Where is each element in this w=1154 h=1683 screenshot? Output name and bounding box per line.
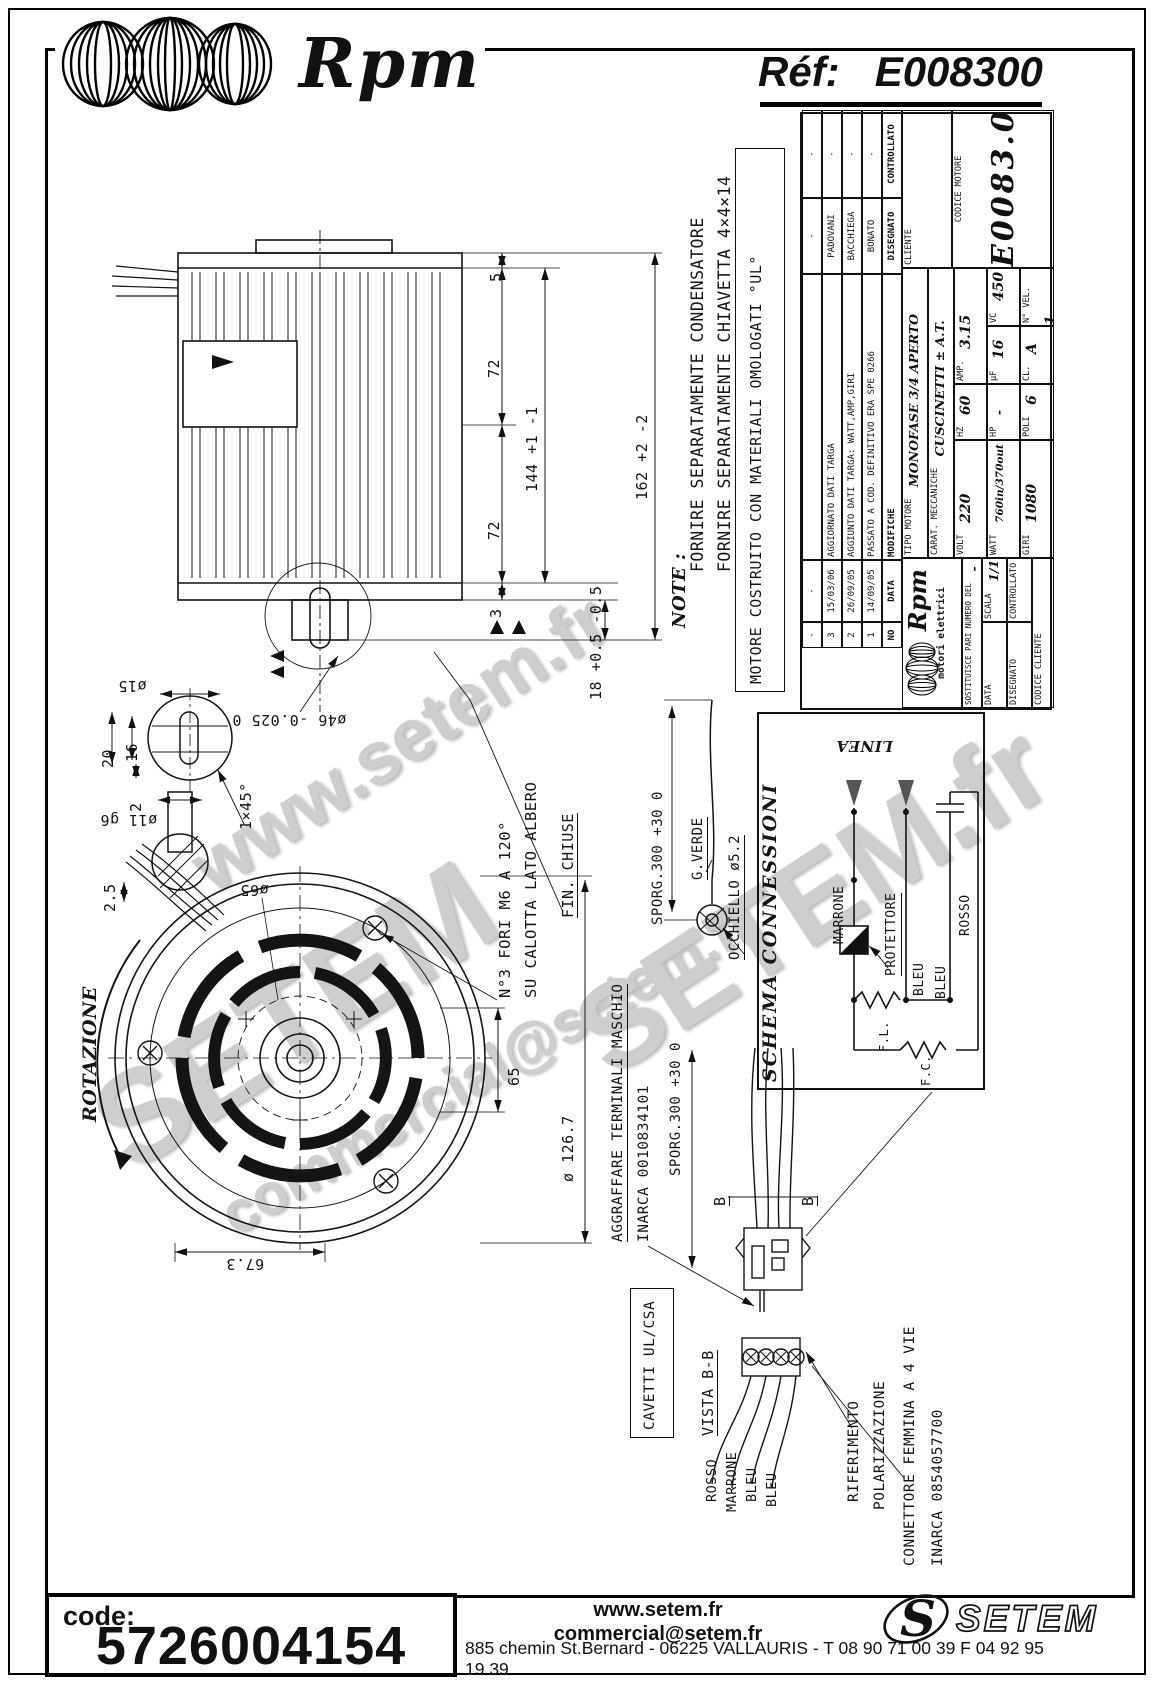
section-b-left: B (712, 1196, 730, 1206)
ref-underline (760, 102, 1042, 107)
tb-scala-label: SCALA (983, 591, 995, 621)
rev-hdr-date: DATA (882, 560, 902, 622)
rev-des: - (802, 198, 822, 274)
tb-scala-value: 1/1 (986, 560, 1001, 582)
brand-text: Rpm (299, 24, 481, 104)
tb-carat-label: CARAT. MECCANICHE (929, 466, 941, 557)
schema-fl-label: F.L. (876, 1021, 892, 1052)
wire-bleu2-label: BLEU (764, 1472, 780, 1507)
tb-sost-label: SOSTITUISCE PARI NUMERO DEL (963, 581, 974, 707)
rev-hdr-des: DISEGNATO (882, 198, 902, 274)
dim-11-label: ø11 g6 (100, 812, 157, 828)
tb-hp-value: - (991, 410, 1006, 415)
schema-rosso-label: ROSSO (958, 894, 974, 936)
rev-des: BACCHIEGA (842, 198, 862, 274)
rev-ctrl: - (822, 110, 842, 198)
tb-logo-cell: Rpm motori elettrici (902, 558, 962, 708)
wire-bleu1-label: BLEU (744, 1467, 760, 1502)
tb-brand: Rpm (903, 569, 932, 631)
wire-rosso-label: ROSSO (704, 1459, 720, 1502)
callout-occhiello: OCCHIELLO ø5.2 (727, 835, 745, 960)
code-value: 5726004154 (49, 1615, 453, 1677)
tb-carat-value: CUSCINETTI ± A.T. (932, 320, 947, 456)
cavetti-label: CAVETTI UL/CSA (642, 1301, 658, 1430)
dim-46-label: ø46 -0.025 0 (232, 712, 346, 728)
riferimento-line2: POLARIZZAZIONE (872, 1381, 888, 1510)
title-block: - - - - 3 15/03/06 AGGIORNATO DATI TARGA… (800, 112, 1052, 710)
dim-20-label: 20 (100, 749, 116, 768)
setem-logo: S SETEM (878, 1590, 1098, 1648)
reference-number: Réf: E008300 (758, 48, 1048, 96)
dim-5-label: 5 (488, 272, 504, 282)
rev-date: 26/09/05 (842, 560, 862, 622)
revision-row: 1 14/09/05 PASSATO A COD. DEFINITIVO ERA… (862, 110, 882, 648)
callout-gverde: G.VERDE (690, 817, 708, 880)
dim-25-label: 2.5 (102, 883, 118, 912)
tb-poli-value: 6 (1024, 395, 1040, 405)
tb-hz-label: HZ (955, 425, 967, 439)
tb-amp-label: AMP. (955, 359, 967, 383)
schema-box (757, 712, 985, 1090)
rev-mod: AGGIUNTO DATI TARGA: WATT,AMP,GIRI (842, 274, 862, 560)
shaft-detail-drawing (112, 688, 244, 902)
dim-18-label: 18 +0.5 -0.5 (588, 586, 604, 700)
callout-aggraffare-line2: INARCA 0010834101 (636, 1085, 652, 1242)
dim-72b-label: 72 (486, 521, 502, 540)
note-line2: FORNIRE SEPARATAMENTE CHIAVETTA 4×4×14 (717, 176, 733, 573)
rev-no: - (802, 622, 822, 648)
tb-watt-value: 760in/370out (994, 444, 1006, 523)
tb-volt-label: VOLT (955, 533, 967, 557)
tb-sostituisce-cell: SOSTITUISCE PARI NUMERO DEL - (962, 558, 982, 708)
dim-126-label: ø 126.7 (560, 1115, 576, 1182)
revision-header-row: NO DATA MODIFICHE DISEGNATO CONTROLLATO (882, 110, 902, 648)
tb-disegnato-cell: DISEGNATO BONATO (1007, 622, 1032, 708)
schema-bleu2-label: BLEU (934, 966, 950, 999)
dim-chamfer-label: 1×45° (238, 782, 254, 830)
schema-bleu1-label: BLEU (912, 963, 928, 996)
tb-tipo-value: MONOFASE 3/4 APERTO (906, 314, 921, 487)
schema-linea-label: LINEA (836, 738, 893, 754)
rev-hdr-no: NO (882, 622, 902, 648)
revision-row: 2 26/09/05 AGGIUNTO DATI TARGA: WATT,AMP… (842, 110, 862, 648)
tb-amp-cell: AMP. 3.15 (954, 268, 987, 384)
rev-ctrl: - (842, 110, 862, 198)
connettore-line2: INARCA 0854057700 (930, 1409, 946, 1566)
tb-uf-value: 16 (991, 340, 1007, 359)
dim-673-label: 67.3 (226, 1256, 264, 1272)
tb-controllato-cell: CONTROLLATO (1007, 558, 1032, 622)
wire-marrone-label: MARRONE (724, 1452, 740, 1512)
tb-hz-value: 60 (958, 396, 974, 415)
tb-data-label: DATA (983, 683, 995, 707)
callout-aggraffare-line1: AGGRAFFARE TERMINALI MASCHIO (610, 984, 628, 1242)
dim-162-label: 162 +2 -2 (634, 414, 650, 500)
dim-144-label: 144 +1 -1 (524, 406, 540, 492)
tb-codice-cliente-label: CODICE CLIENTE (1033, 631, 1045, 707)
tb-codice-cliente-cell: CODICE CLIENTE (1032, 558, 1054, 708)
note-label: NOTE : (672, 553, 688, 628)
rev-mod: PASSATO A COD. DEFINITIVO ERA SPE 0266 (862, 274, 882, 560)
rev-hdr-mod: MODIFICHE (882, 274, 902, 560)
rev-ctrl: - (862, 110, 882, 198)
tb-cl-value: A (1024, 343, 1040, 354)
rev-date: 14/09/05 (862, 560, 882, 622)
callout-fori-line1: N°3 FORI M6 A 120° (497, 821, 513, 998)
tb-cliente-label: CLIENTE (903, 227, 915, 267)
schema-protettore-label: PROTETTORE (884, 893, 902, 976)
tb-tipo-label: TIPO MOTORE (903, 497, 915, 557)
rev-des: PADOVANI (822, 198, 842, 274)
ref-label: Réf: (758, 48, 840, 95)
rev-mod: AGGIORNATO DATI TARGA (822, 274, 842, 560)
tb-amp-value: 3.15 (958, 315, 974, 349)
tb-cl-label: CL. (1021, 364, 1033, 383)
tb-carat-cell: CARAT. MECCANICHE CUSCINETTI ± A.T. (928, 268, 954, 558)
tb-giri-label: GIRI (1021, 533, 1033, 557)
tb-hp-label: HP (988, 425, 1000, 439)
dim-65-label: 65 (506, 1067, 522, 1086)
vista-bb-label: VISTA B-B (700, 1350, 718, 1436)
drawing-sheet: www.setem.fr SETEM commercial@setem.fr S… (0, 0, 1154, 1683)
rev-date: 15/03/06 (822, 560, 842, 622)
setem-brand-text: SETEM (956, 1598, 1098, 1640)
tb-uf-cell: µF 16 (987, 326, 1020, 384)
tb-nvel-cell: N° VEL. 1 (1020, 268, 1054, 326)
schema-fc-label: F.C. (918, 1055, 934, 1086)
setem-s-glyph: S (900, 1590, 936, 1648)
connettore-line1: CONNETTORE FEMMINA A 4 VIE (902, 1326, 918, 1566)
tb-watt-cell: WATT 760in/370out (987, 440, 1020, 558)
callout-fori-line2: SU CALOTTA LATO ALBERO (523, 782, 539, 998)
tb-cliente-cell: CLIENTE (902, 110, 952, 268)
tb-sost-value: - (966, 566, 981, 571)
code-box: code: 5726004154 (45, 1593, 457, 1677)
tb-nvel-label: N° VEL. (1021, 285, 1033, 325)
tb-scala-cell: SCALA 1/1 (982, 558, 1007, 622)
tb-vc-value: 450 (991, 272, 1007, 301)
tb-poli-cell: POLI 6 (1020, 384, 1054, 440)
rev-mod (802, 274, 822, 560)
schema-marrone-label: MARRONE (832, 886, 848, 944)
rpm-logo: Rpm (55, 14, 485, 114)
tb-volt-cell: VOLT 220 (954, 440, 987, 558)
note-line1: FORNIRE SEPARATAMENTE CONDENSATORE (690, 217, 706, 572)
tb-tipo-cell: TIPO MOTORE MONOFASE 3/4 APERTO (902, 268, 928, 558)
tb-data-cell: DATA 14/09/05 (982, 622, 1007, 708)
ul-box-text: MOTORE COSTRUITO CON MATERIALI OMOLOGATI… (748, 255, 764, 684)
callout-sporg-ground: SPORG.300 +30 0 (650, 791, 666, 925)
tb-poli-label: POLI (1021, 415, 1033, 439)
tb-vc-cell: VC 450 (987, 268, 1020, 326)
rev-date: - (802, 560, 822, 622)
dim-3-label: 3 (488, 608, 504, 618)
tb-coil-icon (905, 641, 939, 697)
front-view-drawing (97, 844, 492, 1250)
callout-sporg-cable: SPORG.300 +30 0 (668, 1042, 684, 1176)
ref-value: E008300 (875, 48, 1043, 95)
tb-codice-motore-cell: CODICE MOTORE E0083.00 (952, 110, 1054, 268)
tb-hz-cell: HZ 60 (954, 384, 987, 440)
tb-hp-cell: HP - (987, 384, 1020, 440)
riferimento-line1: RIFERIMENTO (846, 1400, 862, 1502)
section-b-right: B (800, 1196, 818, 1206)
rev-ctrl: - (802, 110, 822, 198)
tb-giri-value: 1080 (1024, 484, 1040, 523)
revision-row: 3 15/03/06 AGGIORNATO DATI TARGA PADOVAN… (822, 110, 842, 648)
tb-codice-motore-value: E0083.00 (986, 110, 1021, 267)
tb-uf-label: µF (988, 369, 1000, 383)
tb-codice-motore-label: CODICE MOTORE (953, 154, 965, 225)
tb-cl-cell: CL. A (1020, 326, 1054, 384)
tb-controllato-label: CONTROLLATO (1008, 561, 1020, 621)
dim-72a-label: 72 (486, 359, 502, 378)
setem-swoosh-icon: S (878, 1590, 956, 1648)
rev-no: 1 (862, 622, 882, 648)
tb-disegnato-label: DISEGNATO (1008, 657, 1020, 707)
rev-no: 2 (842, 622, 862, 648)
tb-volt-value: 220 (958, 494, 974, 523)
tb-giri-cell: GIRI 1080 (1020, 440, 1054, 558)
callout-fin-chiuse: FIN. CHIUSE (560, 813, 578, 918)
footer-site: www.setem.fr (468, 1598, 848, 1622)
callout-rotazione: ROTAZIONE (82, 986, 98, 1122)
tb-watt-label: WATT (988, 533, 1000, 557)
tb-vc-label: VC (988, 311, 1000, 325)
dim-15-label: ø15 (118, 678, 147, 694)
coil-icon (55, 16, 285, 112)
dim-65bc-label: ø65 (240, 882, 269, 898)
schema-title: SCHEMA CONNESSIONI (762, 783, 778, 1082)
rev-no: 3 (822, 622, 842, 648)
tb-nvel-value: 1 (1043, 315, 1054, 325)
dim-16-label: 16 (124, 743, 140, 762)
revision-row: - - - - (802, 110, 822, 648)
rev-des: BONATO (862, 198, 882, 274)
rev-hdr-ctrl: CONTROLLATO (882, 110, 902, 198)
